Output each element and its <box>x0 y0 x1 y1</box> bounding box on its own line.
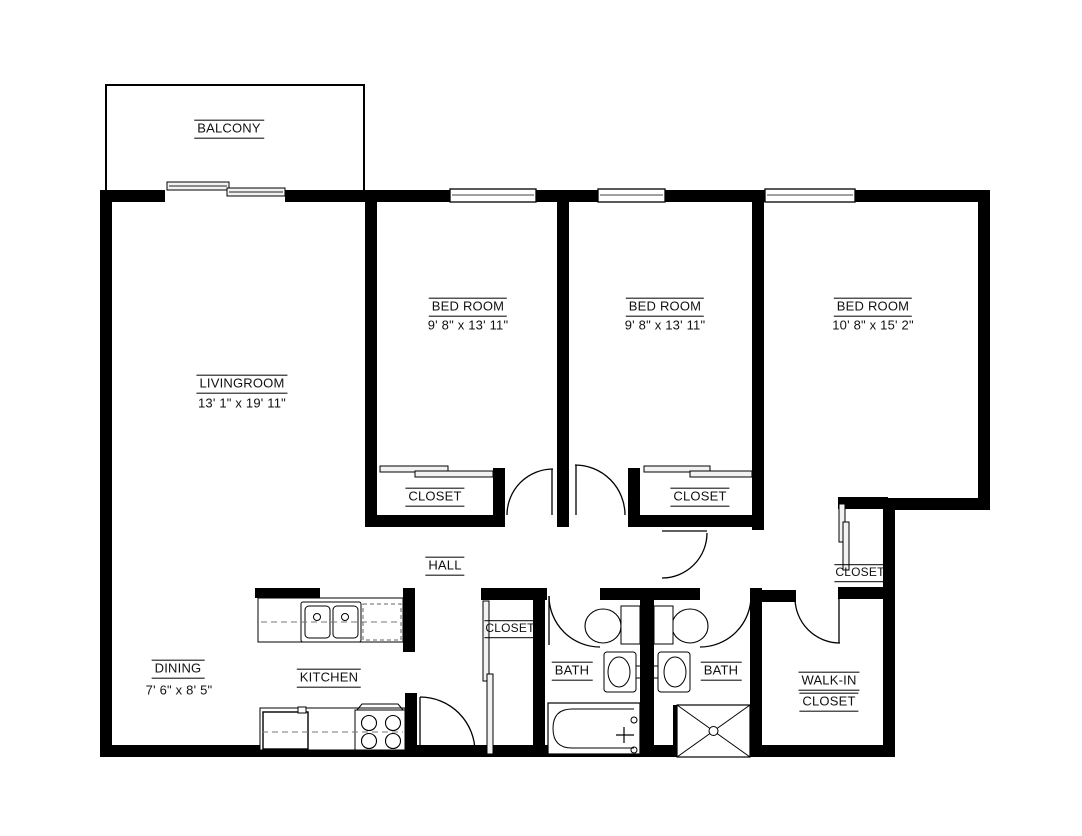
toilet-right <box>658 652 690 692</box>
room-label-bedroom3: BED ROOM <box>834 298 912 317</box>
room-dims-bedroom2: 9' 8" x 13' 11" <box>625 318 706 333</box>
room-dims-livingroom: 13' 1" x 19' 11" <box>198 396 286 411</box>
door-arc-kitchen <box>420 697 475 752</box>
room-label-bedroom1: BED ROOM <box>429 298 507 317</box>
room-label-livingroom: LIVINGROOM <box>196 375 287 394</box>
room-dims-bedroom1: 9' 8" x 13' 11" <box>428 318 509 333</box>
sink-bath-right <box>672 609 708 643</box>
closet1-sliding-panel-2 <box>415 471 493 477</box>
room-label-closet-bedroom3: CLOSET <box>834 564 885 582</box>
room-label-balcony: BALCONY <box>194 120 264 139</box>
room-label-closet-bedroom1: CLOSET <box>405 488 464 507</box>
room-label-bedroom2: BED ROOM <box>626 298 704 317</box>
room-label-bath-right: BATH <box>701 662 742 681</box>
hallcloset-sliding-panel-2 <box>487 674 493 754</box>
window-bedroom2 <box>598 189 665 202</box>
window-bedroom1 <box>450 189 536 202</box>
room-label-closet-bedroom2: CLOSET <box>670 488 729 507</box>
door-arc-bedroom2 <box>575 465 625 515</box>
refrigerator <box>263 712 308 749</box>
fixtures-layer <box>0 0 1082 836</box>
room-dims-dining: 7' 6" x 8' 5" <box>146 683 213 698</box>
window-bedroom3 <box>765 189 855 202</box>
room-label-hall-closet: CLOSET <box>484 620 535 638</box>
floor-plan: BALCONY LIVINGROOM 13' 1" x 19' 11" BED … <box>0 0 1082 836</box>
shower-drain <box>709 727 718 736</box>
room-label-bath-left: BATH <box>552 662 593 681</box>
room-dims-bedroom3: 10' 8" x 15' 2" <box>832 318 914 333</box>
room-label-kitchen: KITCHEN <box>297 669 361 688</box>
toilet-left <box>604 652 636 692</box>
vanity-bath-right <box>654 606 673 644</box>
door-arc-corridor <box>662 533 707 578</box>
closet3-sliding-panel-2 <box>843 522 849 570</box>
vanity-bath-left <box>621 606 640 644</box>
closet2-sliding-panel-2 <box>690 471 752 477</box>
door-arc-walkin-closet <box>795 598 840 643</box>
room-label-dining: DINING <box>152 660 205 679</box>
room-label-walkin-line1: WALK-IN <box>798 672 859 691</box>
hallcloset-sliding-panel-1 <box>483 601 489 681</box>
sink-bath-left <box>585 609 621 643</box>
room-label-walkin-line2: CLOSET <box>799 693 858 712</box>
room-label-hall: HALL <box>425 557 464 576</box>
refrigerator-handle <box>298 707 306 713</box>
door-arc-bedroom1 <box>507 469 553 515</box>
